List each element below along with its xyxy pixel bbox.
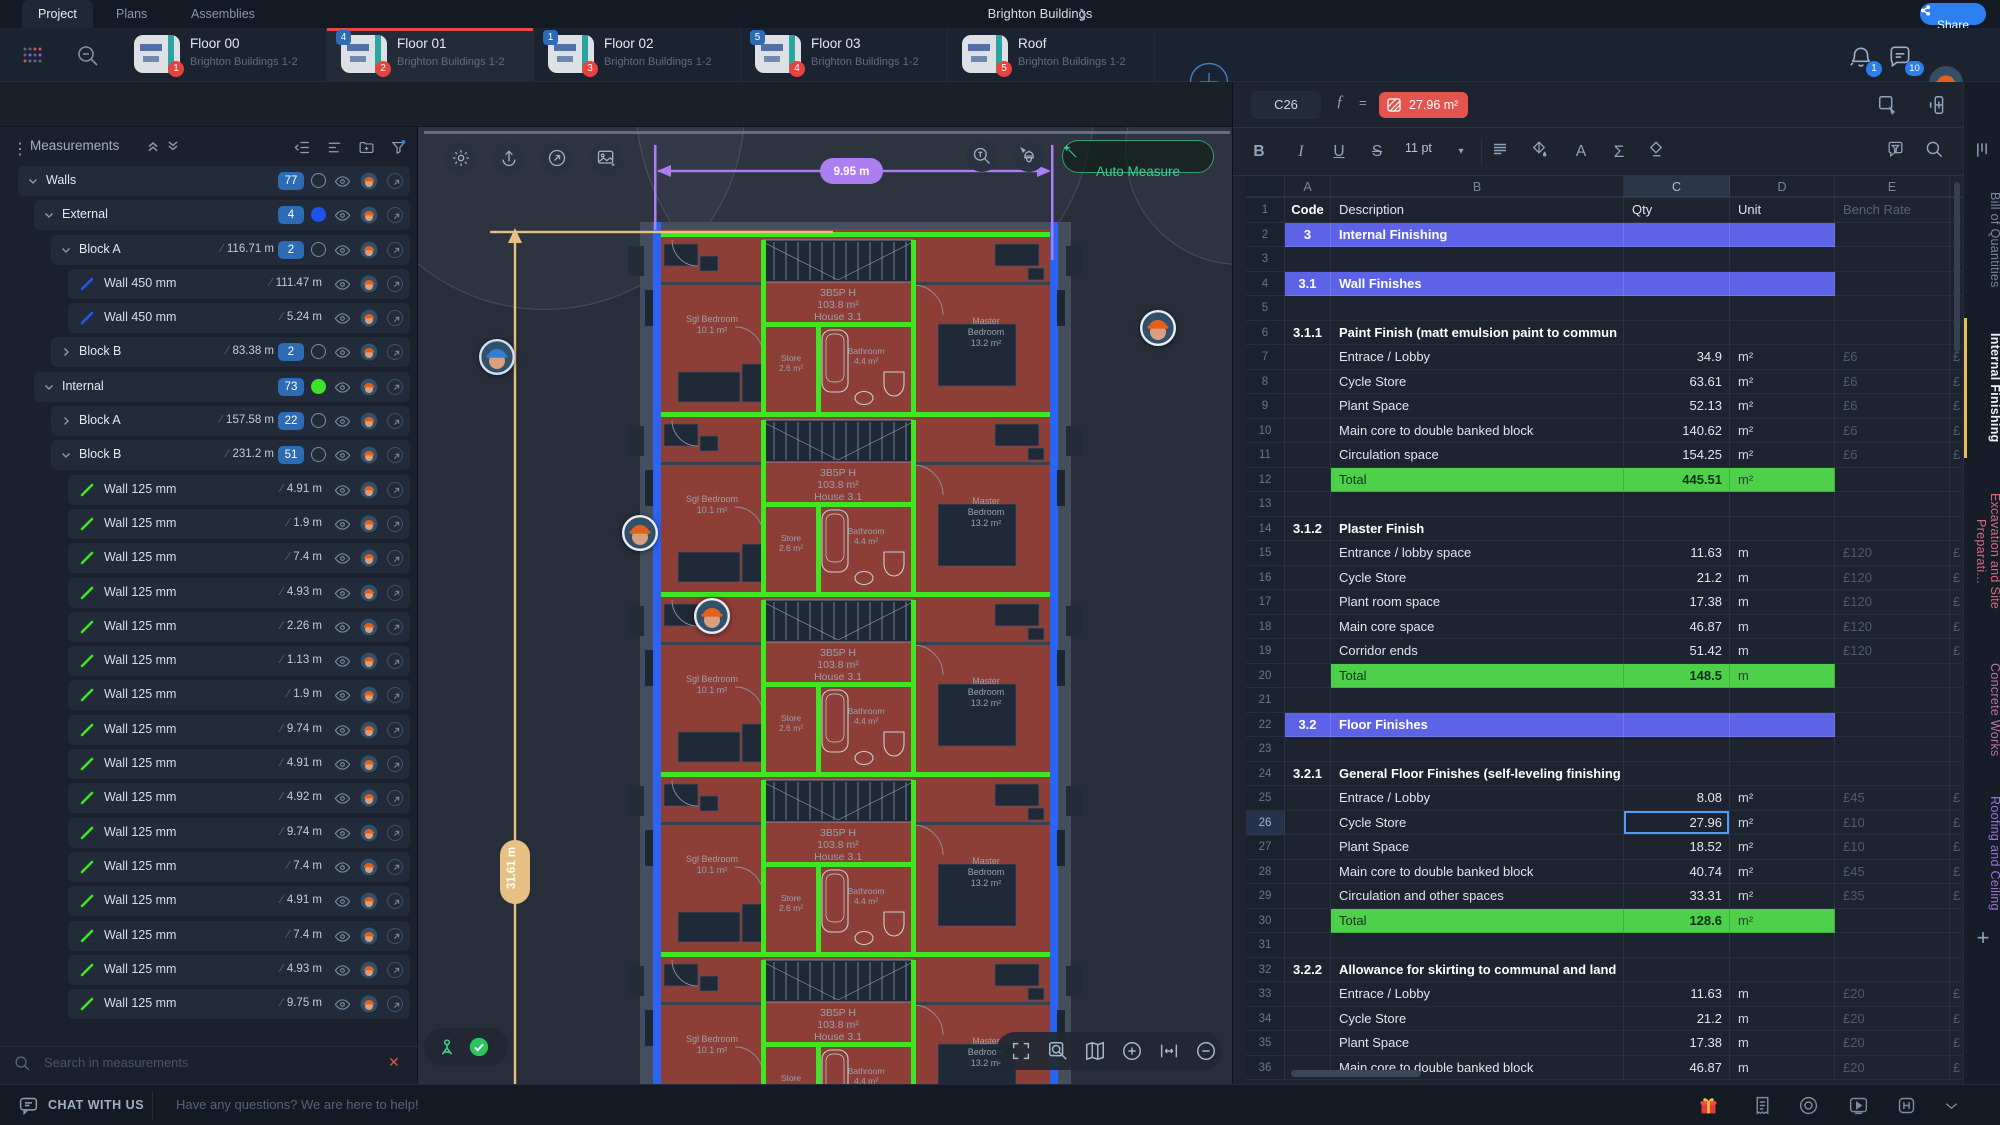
tree-row[interactable]: Wall 125 mm∕4.93 m (68, 578, 410, 608)
sheet-cell[interactable] (1624, 247, 1730, 272)
row-number[interactable]: 23 (1246, 737, 1285, 762)
text-search-button[interactable] (966, 140, 998, 172)
sum-button[interactable]: Σ (1607, 140, 1631, 164)
sheet-cell[interactable]: m² (1730, 394, 1835, 419)
sheet-cell[interactable]: m² (1730, 786, 1835, 811)
row-number[interactable]: 29 (1246, 884, 1285, 909)
sheet-cell[interactable] (1835, 468, 1950, 493)
sheet-cell[interactable]: m (1730, 639, 1835, 664)
sheet-cell[interactable]: m (1730, 1031, 1835, 1056)
tree-row[interactable]: Wall 125 mm∕7.4 m (68, 921, 410, 951)
sheet-cell[interactable]: Entrace / Lobby (1331, 786, 1624, 811)
sheet-cell[interactable]: £ (1950, 786, 1962, 811)
row-number[interactable]: 30 (1246, 909, 1285, 934)
sheet-cell[interactable] (1730, 223, 1835, 248)
sheet-cell[interactable]: 33.31 (1624, 884, 1730, 909)
sheet-cell[interactable]: £ (1950, 419, 1962, 444)
visibility-eye-icon[interactable] (334, 722, 351, 739)
open-measurement-icon[interactable] (387, 207, 403, 223)
sheet-cell[interactable] (1285, 860, 1331, 885)
sheet-cell[interactable]: Internal Finishing (1331, 223, 1624, 248)
sheet-cell[interactable] (1285, 247, 1331, 272)
plan-export-button[interactable] (492, 141, 526, 175)
column-letter-E[interactable]: E (1835, 176, 1950, 197)
sheet-cell[interactable] (1331, 737, 1624, 762)
fullscreen-icon[interactable] (1010, 1040, 1032, 1062)
sheet-cell[interactable] (1624, 321, 1730, 346)
sheet-cell[interactable] (1285, 664, 1331, 689)
row-number[interactable]: 10 (1246, 419, 1285, 444)
sheet-cell[interactable] (1331, 688, 1624, 713)
sheet-cell[interactable] (1624, 713, 1730, 738)
invoice-icon[interactable] (1752, 1095, 1773, 1116)
sheet-cell[interactable]: Main core to double banked block (1331, 860, 1624, 885)
open-measurement-icon[interactable] (387, 996, 403, 1012)
sheet-cell[interactable] (1835, 958, 1950, 983)
sheet-cell[interactable]: £120 (1835, 590, 1950, 615)
visibility-eye-icon[interactable] (334, 550, 351, 567)
sheet-cell[interactable]: Entrance / lobby space (1331, 541, 1624, 566)
row-number[interactable]: 19 (1246, 639, 1285, 664)
sheet-cell[interactable] (1285, 492, 1331, 517)
sheet-cell[interactable]: Paint Finish (matt emulsion paint to com… (1331, 321, 1624, 346)
row-number[interactable]: 35 (1246, 1031, 1285, 1056)
sheet-cell[interactable]: £6 (1835, 443, 1950, 468)
chevron-down-icon[interactable] (43, 209, 55, 221)
chat-with-us-label[interactable]: CHAT WITH US (48, 1098, 144, 1112)
visibility-eye-icon[interactable] (334, 276, 351, 293)
row-number[interactable]: 7 (1246, 345, 1285, 370)
fill-color-button[interactable] (1530, 140, 1554, 164)
sheet-cell[interactable]: m (1730, 566, 1835, 591)
row-number[interactable]: 21 (1246, 688, 1285, 713)
sheet-cell[interactable] (1285, 615, 1331, 640)
collaborator-avatar[interactable] (479, 339, 515, 375)
column-letter-A[interactable]: A (1285, 176, 1331, 197)
row-number[interactable]: 11 (1246, 443, 1285, 468)
floor-plan[interactable]: 3B5P H103.8 m²House 3.1Sgl Bedroom10.1 m… (418, 127, 1232, 1084)
sheet-cell[interactable]: m (1730, 982, 1835, 1007)
select-range-icon[interactable] (1877, 94, 1899, 116)
sheet-cell[interactable]: £6 (1835, 419, 1950, 444)
zoom-area-icon[interactable] (1047, 1040, 1069, 1062)
open-measurement-icon[interactable] (387, 928, 403, 944)
sheet-tab-internal-finishing[interactable]: Internal Finishing (1964, 318, 2000, 458)
share-button[interactable]: Share (1920, 3, 1986, 25)
sheet-cell[interactable]: £120 (1835, 639, 1950, 664)
tab-project[interactable]: Project (22, 0, 93, 28)
sheet-cell[interactable] (1624, 762, 1730, 787)
sheet-cell[interactable]: 63.61 (1624, 370, 1730, 395)
sheet-cell[interactable]: £ (1950, 860, 1962, 885)
sheet-cell[interactable] (1950, 492, 1962, 517)
visibility-eye-icon[interactable] (334, 859, 351, 876)
underline-button[interactable]: U (1327, 140, 1351, 164)
sheet-cell[interactable] (1835, 713, 1950, 738)
outdent-icon[interactable] (294, 139, 310, 155)
sheet-cell[interactable]: m² (1730, 860, 1835, 885)
sheet-cell[interactable]: Qty (1624, 198, 1730, 223)
chevron-down-icon[interactable] (60, 449, 72, 461)
visibility-eye-icon[interactable] (334, 893, 351, 910)
open-measurement-icon[interactable] (387, 173, 403, 189)
sheet-cell[interactable]: £ (1950, 1031, 1962, 1056)
open-measurement-icon[interactable] (387, 379, 403, 395)
row-number[interactable]: 20 (1246, 664, 1285, 689)
tree-row[interactable]: Wall 125 mm∕4.91 m (68, 749, 410, 779)
sheet-cell[interactable]: 46.87 (1624, 615, 1730, 640)
sheet-cell[interactable] (1285, 1007, 1331, 1032)
sheet-cell[interactable] (1950, 737, 1962, 762)
tree-row[interactable]: Walls77 (18, 166, 410, 196)
visibility-eye-icon[interactable] (334, 653, 351, 670)
open-measurement-icon[interactable] (387, 344, 403, 360)
sheet-cell[interactable] (1950, 933, 1962, 958)
columns-icon[interactable] (1972, 140, 1994, 162)
sheet-cell[interactable] (1835, 296, 1950, 321)
gift-icon[interactable] (1698, 1095, 1719, 1116)
visibility-eye-icon[interactable] (334, 756, 351, 773)
sheet-cell[interactable]: 3 (1285, 223, 1331, 248)
sheet-cell[interactable]: 3.1.2 (1285, 517, 1331, 542)
color-indicator[interactable] (311, 344, 326, 359)
open-measurement-icon[interactable] (387, 653, 403, 669)
sheet-cell[interactable]: 11.63 (1624, 982, 1730, 1007)
open-measurement-icon[interactable] (387, 619, 403, 635)
sheet-cell[interactable]: Entrace / Lobby (1331, 345, 1624, 370)
formula-value-chip[interactable]: 27.96 m² (1379, 92, 1468, 118)
video-icon[interactable] (1848, 1095, 1869, 1116)
visibility-eye-icon[interactable] (334, 242, 351, 259)
sheet-cell[interactable] (1624, 958, 1730, 983)
sheet-cell[interactable]: 3.1 (1285, 272, 1331, 297)
sheet-cell[interactable]: £20 (1835, 982, 1950, 1007)
sheet-cell[interactable] (1835, 517, 1950, 542)
sheet-cell[interactable] (1950, 664, 1962, 689)
sheet-cell[interactable] (1835, 492, 1950, 517)
fit-width-icon[interactable] (1158, 1040, 1180, 1062)
sheet-cell[interactable]: Cycle Store (1331, 566, 1624, 591)
sheet-cell[interactable]: Floor Finishes (1331, 713, 1624, 738)
visibility-eye-icon[interactable] (334, 379, 351, 396)
color-indicator[interactable] (311, 447, 326, 462)
open-measurement-icon[interactable] (387, 893, 403, 909)
sheet-cell[interactable] (1950, 517, 1962, 542)
tree-row[interactable]: Wall 125 mm∕4.92 m (68, 783, 410, 813)
sheet-cell[interactable]: Total (1331, 468, 1624, 493)
zoom-out-icon[interactable] (1195, 1040, 1217, 1062)
sheet-cell[interactable]: m² (1730, 468, 1835, 493)
open-measurement-icon[interactable] (387, 859, 403, 875)
sheet-cell[interactable]: Cycle Store (1331, 370, 1624, 395)
row-number[interactable]: 34 (1246, 1007, 1285, 1032)
floor-tab-floor-01[interactable]: 4 2 Floor 01 Brighton Buildings 1-2 (327, 28, 534, 82)
sheet-cell[interactable]: 51.42 (1624, 639, 1730, 664)
sheet-cell[interactable] (1285, 468, 1331, 493)
sheet-cell[interactable] (1285, 982, 1331, 1007)
collaborator-avatar[interactable] (622, 515, 658, 551)
sheet-tab-excavation-and-site-preparati-[interactable]: Excavation and Site Preparati... (1964, 468, 2000, 634)
sheet-cell[interactable]: m (1730, 1007, 1835, 1032)
sheet-cell[interactable] (1331, 492, 1624, 517)
font-color-button[interactable]: A (1569, 140, 1593, 164)
sheet-cell[interactable]: Total (1331, 909, 1624, 934)
visibility-eye-icon[interactable] (334, 687, 351, 704)
row-number[interactable]: 33 (1246, 982, 1285, 1007)
clear-search-icon[interactable]: ✕ (388, 1054, 400, 1071)
zoom-in-icon[interactable] (1121, 1040, 1143, 1062)
sheet-cell[interactable] (1835, 223, 1950, 248)
sheet-cell[interactable]: £6 (1835, 345, 1950, 370)
row-number[interactable]: 32 (1246, 958, 1285, 983)
column-letter-C[interactable]: C (1624, 176, 1730, 197)
sheet-cell[interactable] (1835, 737, 1950, 762)
sheet-cell[interactable]: £ (1950, 590, 1962, 615)
sheet-cell[interactable]: £ (1950, 394, 1962, 419)
visibility-eye-icon[interactable] (334, 310, 351, 327)
sheet-cell[interactable] (1285, 1031, 1331, 1056)
sheet-cell[interactable]: £6 (1835, 394, 1950, 419)
help-icon[interactable] (1798, 1095, 1819, 1116)
sheet-cell[interactable] (1730, 247, 1835, 272)
collapse-icon[interactable] (1941, 1095, 1962, 1116)
sheet-cell[interactable]: 154.25 (1624, 443, 1730, 468)
floor-tab-floor-00[interactable]: 1 Floor 00 Brighton Buildings 1-2 (120, 28, 327, 82)
color-indicator[interactable] (311, 173, 326, 188)
sheet-cell[interactable] (1285, 933, 1331, 958)
chat-bubble-icon[interactable] (18, 1095, 39, 1116)
sheet-cell[interactable]: £10 (1835, 811, 1950, 836)
sheet-cell[interactable]: General Floor Finishes (self-leveling fi… (1331, 762, 1624, 787)
sheet-cell[interactable] (1285, 419, 1331, 444)
chevron-down-icon[interactable] (60, 244, 72, 256)
sheet-cell[interactable]: Plant Space (1331, 394, 1624, 419)
sheet-cell[interactable] (1835, 247, 1950, 272)
tab-plans[interactable]: Plans (100, 0, 163, 28)
sheet-cell[interactable]: Bench Rate (1835, 198, 1950, 223)
open-measurement-icon[interactable] (387, 413, 403, 429)
sheet-cell[interactable] (1331, 296, 1624, 321)
sheet-cell[interactable] (1730, 713, 1835, 738)
visibility-eye-icon[interactable] (334, 344, 351, 361)
sheet-cell[interactable] (1950, 762, 1962, 787)
row-number[interactable]: 36 (1246, 1056, 1285, 1081)
sheet-cell[interactable]: Plant Space (1331, 1031, 1624, 1056)
drag-handle-icon[interactable]: ⋮ (12, 139, 28, 155)
sheet-cell[interactable] (1730, 517, 1835, 542)
measure-status-pill[interactable] (424, 1028, 508, 1066)
open-measurement-icon[interactable] (387, 756, 403, 772)
sheet-cell[interactable]: £45 (1835, 860, 1950, 885)
filter-icon[interactable] (390, 139, 406, 155)
sheet-cell[interactable] (1285, 541, 1331, 566)
comments-button[interactable] (1886, 140, 1910, 164)
sheet-cell[interactable]: £35 (1835, 884, 1950, 909)
visibility-eye-icon[interactable] (334, 790, 351, 807)
sheet-cell[interactable]: Description (1331, 198, 1624, 223)
sheet-cell[interactable] (1285, 394, 1331, 419)
visibility-eye-icon[interactable] (334, 962, 351, 979)
sheet-cell[interactable] (1950, 468, 1962, 493)
visibility-eye-icon[interactable] (334, 825, 351, 842)
vertical-scrollbar[interactable] (1954, 182, 1960, 352)
sheet-cell[interactable] (1285, 296, 1331, 321)
sheet-cell[interactable]: 148.5 (1624, 664, 1730, 689)
sheet-cell[interactable] (1950, 713, 1962, 738)
sheet-cell[interactable]: m (1730, 615, 1835, 640)
sheet-cell[interactable]: £45 (1835, 786, 1950, 811)
sheet-cell[interactable]: Plant Space (1331, 835, 1624, 860)
sheet-cell[interactable]: Entrace / Lobby (1331, 982, 1624, 1007)
sheet-cell[interactable]: 8.08 (1624, 786, 1730, 811)
row-number[interactable]: 13 (1246, 492, 1285, 517)
floor-tab-floor-02[interactable]: 1 3 Floor 02 Brighton Buildings 1-2 (534, 28, 741, 82)
tree-row[interactable]: Wall 125 mm∕1.13 m (68, 646, 410, 676)
sheet-cell[interactable] (1624, 933, 1730, 958)
tree-row[interactable]: External4 (34, 200, 410, 230)
sheet-cell[interactable] (1285, 443, 1331, 468)
bold-button[interactable]: B (1247, 140, 1271, 164)
open-measurement-icon[interactable] (387, 962, 403, 978)
floor-tab-roof[interactable]: 5 Roof Brighton Buildings 1-2 (948, 28, 1155, 82)
sheet-cell[interactable]: Wall Finishes (1331, 272, 1624, 297)
sheet-cell[interactable] (1285, 909, 1331, 934)
tree-row[interactable]: Wall 125 mm∕4.91 m (68, 475, 410, 505)
open-measurement-icon[interactable] (387, 310, 403, 326)
sheet-cell[interactable] (1835, 664, 1950, 689)
row-number[interactable]: 15 (1246, 541, 1285, 566)
row-number[interactable]: 14 (1246, 517, 1285, 542)
sheet-cell[interactable]: Main core space (1331, 615, 1624, 640)
sheet-cell[interactable]: £ (1950, 615, 1962, 640)
tab-assemblies[interactable]: Assemblies (175, 0, 271, 28)
sheet-cell[interactable] (1624, 737, 1730, 762)
sheet-cell[interactable]: £20 (1835, 1031, 1950, 1056)
open-measurement-icon[interactable] (387, 687, 403, 703)
sheet-cell-selected[interactable]: 27.96 (1624, 811, 1730, 836)
sheet-cell[interactable]: Plaster Finish (1331, 517, 1624, 542)
sheet-cell[interactable] (1285, 786, 1331, 811)
sheet-cell[interactable] (1835, 909, 1950, 934)
sheet-cell[interactable] (1331, 933, 1624, 958)
sheet-cell[interactable]: £ (1950, 370, 1962, 395)
sheet-cell[interactable]: 3.2.1 (1285, 762, 1331, 787)
sheet-cell[interactable]: m² (1730, 884, 1835, 909)
sheet-cell[interactable]: Unit (1730, 198, 1835, 223)
tree-row[interactable]: Block B∕83.38 m2 (51, 337, 410, 367)
column-letter-D[interactable]: D (1730, 176, 1835, 197)
visibility-eye-icon[interactable] (334, 516, 351, 533)
list-view-icon[interactable] (326, 139, 342, 155)
row-number[interactable]: 5 (1246, 296, 1285, 321)
sheet-cell[interactable] (1730, 296, 1835, 321)
tree-row[interactable]: Internal73 (34, 372, 410, 402)
row-number[interactable]: 2 (1246, 223, 1285, 248)
horizontal-scrollbar[interactable] (1291, 1070, 1421, 1077)
sheet-cell[interactable] (1730, 762, 1835, 787)
sheet-cell[interactable]: Plant room space (1331, 590, 1624, 615)
sheet-cell[interactable]: £ (1950, 884, 1962, 909)
sheet-cell[interactable] (1285, 811, 1331, 836)
font-size-chevron-icon[interactable]: ▾ (1449, 140, 1473, 164)
sheet-cell[interactable]: £ (1950, 1007, 1962, 1032)
row-number[interactable]: 3 (1246, 247, 1285, 272)
color-indicator[interactable] (311, 207, 326, 222)
sheet-cell[interactable] (1835, 933, 1950, 958)
sheet-cell[interactable] (1285, 884, 1331, 909)
sheet-cell[interactable] (1285, 566, 1331, 591)
visibility-eye-icon[interactable] (334, 585, 351, 602)
sheet-cell[interactable]: m² (1730, 419, 1835, 444)
apps-grid-icon[interactable] (22, 44, 46, 68)
sheet-cell[interactable]: £ (1950, 835, 1962, 860)
sheet-cell[interactable]: m (1730, 1056, 1835, 1081)
tree-row[interactable]: Wall 125 mm∕7.4 m (68, 543, 410, 573)
sheet-cell[interactable] (1835, 272, 1950, 297)
visibility-eye-icon[interactable] (334, 207, 351, 224)
sheet-cell[interactable]: 52.13 (1624, 394, 1730, 419)
collapse-all-icon[interactable] (146, 139, 162, 155)
measurements-search[interactable]: Search in measurements ✕ (0, 1046, 418, 1079)
sheet-cell[interactable] (1950, 688, 1962, 713)
shortcuts-icon[interactable] (1896, 1095, 1917, 1116)
visibility-eye-icon[interactable] (334, 482, 351, 499)
visibility-eye-icon[interactable] (334, 413, 351, 430)
tree-row[interactable]: Block A∕157.58 m22 (51, 406, 410, 436)
row-number[interactable]: 12 (1246, 468, 1285, 493)
visibility-eye-icon[interactable] (334, 619, 351, 636)
sheet-cell[interactable]: 18.52 (1624, 835, 1730, 860)
sheet-cell[interactable]: m² (1730, 835, 1835, 860)
sheet-search-button[interactable] (1925, 140, 1949, 164)
auto-measure-button[interactable]: Auto Measure (1062, 140, 1214, 173)
collaborator-avatar[interactable] (694, 598, 730, 634)
plan-settings-button[interactable] (444, 141, 478, 175)
tree-row[interactable]: Wall 125 mm∕7.4 m (68, 852, 410, 882)
sheet-cell[interactable]: £120 (1835, 615, 1950, 640)
row-number[interactable]: 24 (1246, 762, 1285, 787)
tree-row[interactable]: Wall 450 mm∕111.47 m (68, 269, 410, 299)
sheet-cell[interactable] (1835, 762, 1950, 787)
map-icon[interactable] (1084, 1040, 1106, 1062)
sheet-cell[interactable]: m² (1730, 909, 1835, 934)
sheet-cell[interactable]: £ (1950, 1056, 1962, 1081)
sheet-cell[interactable] (1624, 272, 1730, 297)
sheet-cell[interactable]: m² (1730, 811, 1835, 836)
add-folder-icon[interactable] (358, 139, 374, 155)
tree-row[interactable]: Wall 125 mm∕1.9 m (68, 680, 410, 710)
cell-reference[interactable]: C26 (1251, 91, 1321, 119)
sheet-cell[interactable] (1835, 321, 1950, 346)
sheet-cell[interactable]: £ (1950, 566, 1962, 591)
color-indicator[interactable] (311, 413, 326, 428)
row-number[interactable]: 18 (1246, 615, 1285, 640)
chevron-right-icon[interactable] (60, 415, 72, 427)
align-button[interactable] (1491, 140, 1515, 164)
sheet-cell[interactable] (1285, 835, 1331, 860)
row-number[interactable]: 26 (1246, 811, 1285, 836)
sheet-cell[interactable]: Cycle Store (1331, 1007, 1624, 1032)
sheet-cell[interactable]: Circulation space (1331, 443, 1624, 468)
sheet-cell[interactable]: Circulation and other spaces (1331, 884, 1624, 909)
sheet-cell[interactable]: £20 (1835, 1007, 1950, 1032)
tree-row[interactable]: Wall 125 mm∕1.9 m (68, 509, 410, 539)
chevron-down-icon[interactable] (43, 381, 55, 393)
sheet-cell[interactable] (1331, 247, 1624, 272)
sheet-cell[interactable] (1950, 958, 1962, 983)
sheet-cell[interactable]: 445.51 (1624, 468, 1730, 493)
sheet-cell[interactable]: £ (1950, 443, 1962, 468)
